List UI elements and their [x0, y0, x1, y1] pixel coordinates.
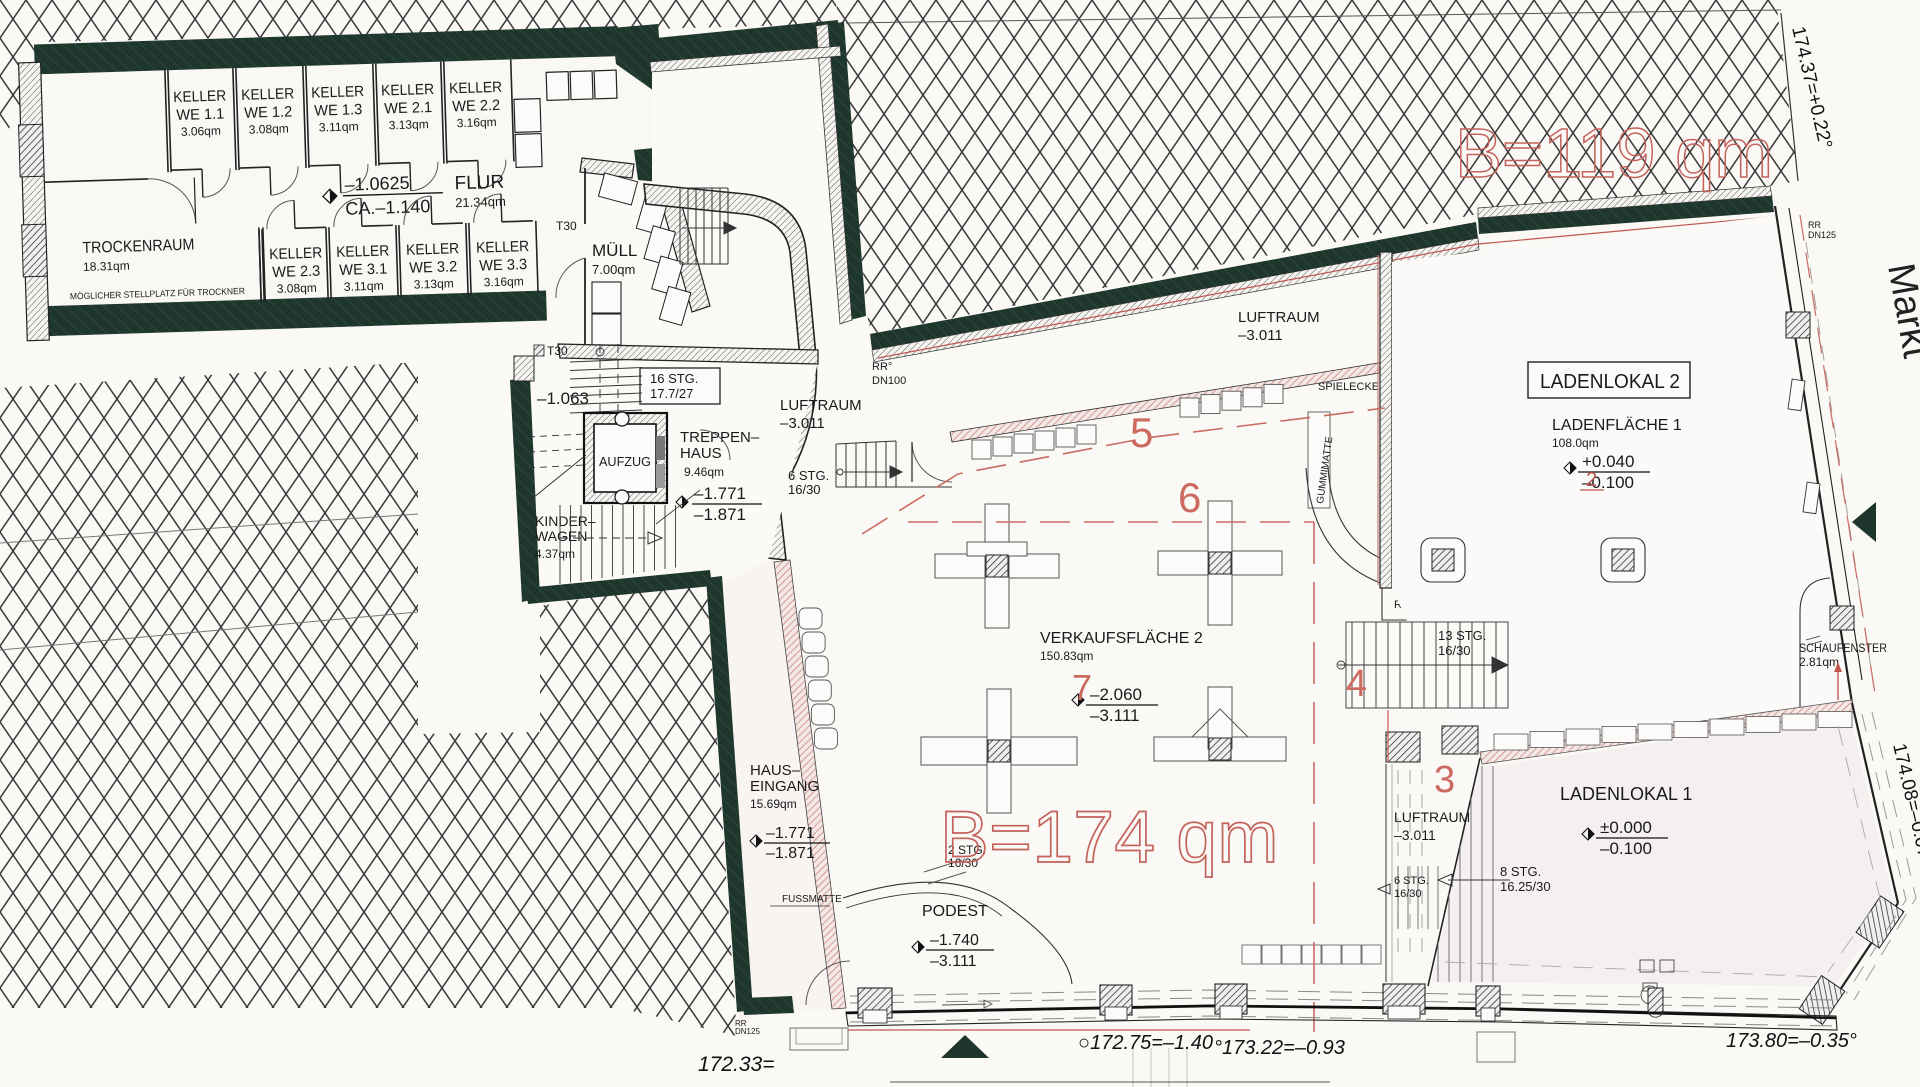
svg-text:KELLER: KELLER [406, 240, 460, 259]
svg-text:3.08qm: 3.08qm [277, 281, 317, 296]
svg-text:6 STG.: 6 STG. [788, 468, 829, 483]
svg-text:16.25/30: 16.25/30 [1500, 879, 1551, 894]
svg-text:DN125: DN125 [1808, 230, 1836, 240]
svg-text:PODEST: PODEST [922, 903, 988, 920]
svg-text:WE 3.1: WE 3.1 [339, 260, 388, 278]
svg-text:LUFTRAUM: LUFTRAUM [1394, 809, 1470, 825]
svg-text:AUFZUG: AUFZUG [599, 454, 651, 469]
svg-text:–1.063: –1.063 [537, 389, 589, 408]
svg-text:WE 3.3: WE 3.3 [479, 256, 528, 274]
svg-text:B=119 qm: B=119 qm [1455, 114, 1773, 192]
svg-text:4.37qm: 4.37qm [535, 547, 575, 561]
svg-text:16/30: 16/30 [1438, 643, 1471, 658]
svg-text:KELLER: KELLER [449, 79, 503, 98]
svg-text:LADENLOKAL 2: LADENLOKAL 2 [1540, 371, 1680, 393]
svg-text:17.7/27: 17.7/27 [650, 386, 693, 401]
svg-text:–3.111: –3.111 [1090, 706, 1139, 725]
svg-text:LUFTRAUM: LUFTRAUM [1238, 309, 1320, 326]
svg-text:2.81qm: 2.81qm [1799, 655, 1839, 669]
svg-text:KELLER: KELLER [311, 83, 365, 102]
svg-text:3: 3 [1434, 759, 1455, 801]
svg-text:–1.871: –1.871 [694, 505, 746, 524]
svg-text:RR: RR [1808, 220, 1821, 230]
svg-text:13 STG.: 13 STG. [1438, 628, 1486, 643]
svg-text:KELLER: KELLER [381, 81, 435, 100]
svg-text:LUFTRAUM: LUFTRAUM [780, 397, 862, 414]
svg-text:SCHAUFENSTER: SCHAUFENSTER [1799, 641, 1887, 655]
svg-text:KELLER: KELLER [476, 238, 530, 257]
svg-text:–3.011: –3.011 [1238, 327, 1283, 344]
svg-text:KELLER: KELLER [269, 244, 323, 263]
svg-text:FUSSMATTE: FUSSMATTE [782, 894, 842, 905]
svg-text:°173.22=–0.93: °173.22=–0.93 [1214, 1037, 1345, 1059]
svg-text:SPIELECKE: SPIELECKE [1318, 381, 1379, 393]
svg-text:WE 3.2: WE 3.2 [409, 258, 458, 276]
svg-text:–1.771: –1.771 [766, 825, 815, 842]
svg-text:B=174 qm: B=174 qm [940, 797, 1279, 878]
svg-text:2: 2 [1586, 469, 1597, 491]
svg-text:–3.011: –3.011 [780, 415, 825, 432]
svg-text:–1.0625: –1.0625 [344, 173, 410, 195]
svg-text:8 STG.: 8 STG. [1500, 864, 1541, 879]
svg-text:3.11qm: 3.11qm [319, 119, 359, 134]
svg-text:LADENFLÄCHE 1: LADENFLÄCHE 1 [1552, 416, 1682, 434]
svg-text:KELLER: KELLER [336, 242, 390, 261]
svg-text:KELLER: KELLER [241, 85, 295, 104]
svg-text:RR°: RR° [872, 361, 892, 373]
svg-text:16 STG.: 16 STG. [650, 371, 698, 386]
svg-text:BLAU: BLAU [521, 105, 531, 126]
svg-text:T30: T30 [547, 344, 568, 358]
svg-text:DN125: DN125 [735, 1027, 760, 1036]
svg-text:18.31qm: 18.31qm [83, 259, 130, 274]
svg-text:±0.000: ±0.000 [1600, 818, 1652, 837]
svg-text:FLUR: FLUR [454, 172, 504, 195]
svg-text:VERKAUFSFLÄCHE 2: VERKAUFSFLÄCHE 2 [1040, 629, 1203, 647]
svg-text:3.06qm: 3.06qm [181, 124, 221, 139]
svg-text:7: 7 [1072, 667, 1092, 708]
svg-text:108.0qm: 108.0qm [1552, 436, 1599, 450]
svg-text:BLAU: BLAU [571, 81, 592, 91]
svg-text:16/30: 16/30 [788, 482, 821, 497]
svg-text:–2.060: –2.060 [1090, 685, 1142, 704]
svg-text:TROCKENRAUM: TROCKENRAUM [82, 237, 194, 258]
svg-text:9.46qm: 9.46qm [684, 465, 724, 479]
svg-text:21.34qm: 21.34qm [455, 194, 506, 211]
svg-text:3.13qm: 3.13qm [414, 276, 454, 291]
svg-text:KELLER: KELLER [173, 87, 227, 106]
svg-text:7.00qm: 7.00qm [592, 262, 635, 277]
svg-text:BLAU: BLAU [595, 80, 616, 90]
svg-text:WAGEN: WAGEN [535, 528, 587, 544]
svg-text:173.80=–0.35°: 173.80=–0.35° [1726, 1030, 1857, 1052]
svg-text:WE 2.2: WE 2.2 [452, 97, 501, 115]
svg-text:–1.871: –1.871 [766, 845, 815, 862]
svg-text:DN100: DN100 [872, 375, 906, 387]
svg-text:15.69qm: 15.69qm [750, 797, 797, 811]
svg-text:BIO: BIO [599, 294, 613, 303]
svg-text:–3.111: –3.111 [930, 953, 977, 970]
svg-text:–0.100: –0.100 [1600, 839, 1652, 858]
svg-text:3.16qm: 3.16qm [456, 115, 496, 130]
svg-text:BLAU: BLAU [522, 140, 532, 161]
svg-text:BLAU: BLAU [547, 82, 568, 92]
svg-text:5: 5 [1130, 409, 1153, 456]
svg-text:WE 1.2: WE 1.2 [244, 103, 293, 121]
svg-text:172.33=: 172.33= [698, 1053, 775, 1076]
svg-text:–3.011: –3.011 [1394, 827, 1436, 843]
svg-text:T30: T30 [556, 219, 577, 233]
svg-text:WE 1.3: WE 1.3 [314, 101, 363, 119]
svg-text:–1.740: –1.740 [930, 932, 979, 949]
svg-text:○172.75=–1.40: ○172.75=–1.40 [1078, 1032, 1213, 1054]
svg-text:6 STG.: 6 STG. [1394, 875, 1429, 887]
svg-text:HAUS: HAUS [680, 445, 722, 462]
svg-text:4: 4 [1346, 663, 1367, 705]
svg-text:WE 2.3: WE 2.3 [272, 263, 321, 281]
svg-text:EINGANG: EINGANG [750, 778, 819, 795]
svg-text:3.16qm: 3.16qm [483, 274, 523, 289]
svg-text:3.08qm: 3.08qm [249, 121, 289, 136]
svg-text:16/30: 16/30 [1394, 888, 1422, 900]
svg-text:6: 6 [1178, 474, 1201, 521]
svg-text:WE 2.1: WE 2.1 [384, 99, 433, 117]
svg-text:BIO: BIO [599, 326, 613, 335]
svg-text:3.11qm: 3.11qm [344, 279, 384, 294]
svg-text:KINDER–: KINDER– [535, 513, 596, 529]
svg-text:–1.771: –1.771 [694, 484, 746, 503]
svg-text:HAUS–: HAUS– [750, 762, 801, 779]
svg-text:150.83qm: 150.83qm [1040, 649, 1093, 663]
svg-text:3.13qm: 3.13qm [389, 117, 429, 132]
svg-text:LADENLOKAL 1: LADENLOKAL 1 [1560, 784, 1692, 804]
svg-text:WE 1.1: WE 1.1 [176, 106, 225, 124]
svg-text:MÜLL: MÜLL [592, 241, 637, 260]
